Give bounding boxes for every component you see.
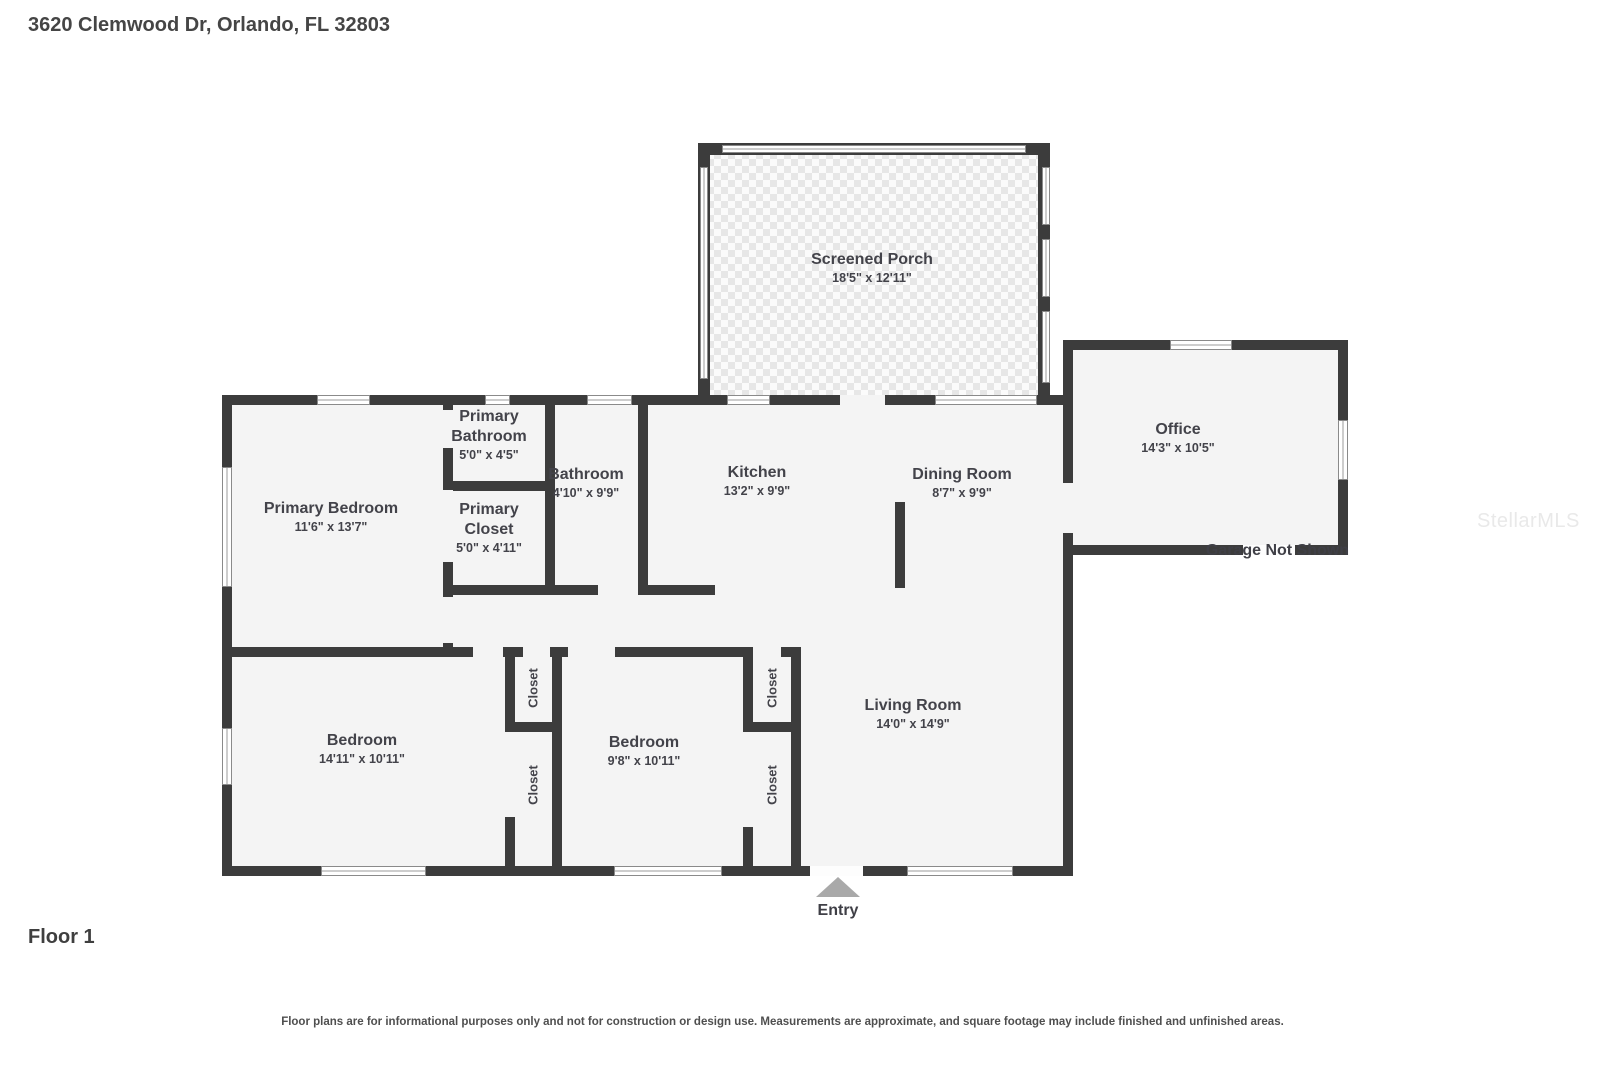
stellar-mls-watermark: StellarMLS [1477, 510, 1580, 533]
disclaimer-text: Floor plans are for informational purpos… [0, 1016, 1565, 1028]
porch-screen-window [1042, 239, 1050, 297]
closet-label: Closet [765, 765, 780, 805]
wall [638, 395, 648, 595]
closet-label: Closet [526, 765, 541, 805]
wall [443, 585, 715, 595]
entry-arrow-icon [816, 877, 860, 897]
wall [1063, 340, 1073, 395]
address-title: 3620 Clemwood Dr, Orlando, FL 32803 [28, 14, 390, 37]
office-opening [1063, 483, 1073, 533]
window [222, 467, 232, 587]
room-label-bathroom: Bathroom 4'10" x 9'9" [548, 465, 624, 501]
room-label-primary-closet: Primary Closet 5'0" x 4'11" [437, 500, 541, 556]
entry-door-opening [810, 866, 863, 876]
porch-screen-window [700, 167, 708, 379]
porch-door-opening [840, 395, 885, 405]
wall [222, 647, 453, 657]
wall [505, 722, 562, 732]
door-opening [523, 647, 550, 657]
kitchen-dining-divider-wall [895, 502, 905, 588]
porch-screen-window [1042, 311, 1050, 383]
window [727, 395, 770, 405]
floor-label: Floor 1 [28, 926, 95, 949]
window [485, 395, 510, 405]
room-label-primary-bedroom: Primary Bedroom 11'6" x 13'7" [264, 499, 398, 535]
room-label-dining-room: Dining Room 8'7" x 9'9" [912, 465, 1012, 501]
closet-label: Closet [526, 668, 541, 708]
window [317, 395, 370, 405]
room-label-living-room: Living Room 14'0" x 14'9" [865, 696, 962, 732]
door-opening [753, 647, 781, 657]
wall [552, 647, 562, 876]
wall [443, 481, 555, 491]
door-opening [505, 732, 515, 817]
porch-screen-window [1042, 167, 1050, 225]
door-opening [743, 732, 753, 827]
entry-label: Entry [818, 902, 859, 920]
door-opening [598, 585, 638, 595]
room-label-bedroom-1: Bedroom 14'11" x 10'11" [319, 731, 405, 767]
wall [1063, 395, 1073, 876]
room-label-primary-bathroom: Primary Bathroom 5'0" x 4'5" [437, 407, 541, 463]
closet-label: Closet [765, 668, 780, 708]
door-opening [473, 647, 503, 657]
window [1338, 420, 1348, 480]
room-label-bedroom-2: Bedroom 9'8" x 10'11" [608, 733, 681, 769]
room-label-kitchen: Kitchen 13'2" x 9'9" [724, 463, 790, 499]
window [1170, 340, 1232, 350]
window [587, 395, 632, 405]
door-opening [443, 597, 453, 643]
floor-plan-page: 3620 Clemwood Dr, Orlando, FL 32803 Floo… [0, 0, 1600, 1066]
window [321, 866, 426, 876]
window [907, 866, 1013, 876]
window [614, 866, 722, 876]
room-label-office: Office 14'3" x 10'5" [1141, 420, 1214, 456]
window [222, 728, 232, 785]
wall [743, 722, 801, 732]
door-opening [568, 647, 615, 657]
porch-screen-window [722, 145, 1026, 153]
window [935, 395, 1037, 405]
garage-not-shown-label: Garage Not Shown [1204, 542, 1349, 560]
wall [791, 647, 801, 876]
room-label-screened-porch: Screened Porch 18'5" x 12'11" [811, 250, 933, 286]
